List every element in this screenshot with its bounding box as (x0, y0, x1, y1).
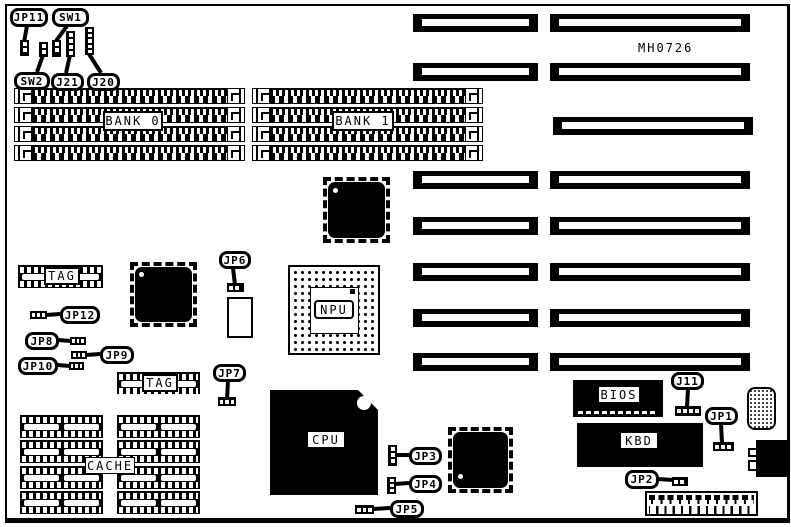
bank1-label: BANK 1 (332, 111, 394, 131)
expansion-slot (413, 14, 538, 32)
expansion-slot (550, 309, 750, 327)
power-connector-pins (649, 495, 754, 504)
jumper-jp4-block (387, 477, 396, 494)
keyboard-din-connector (756, 440, 788, 477)
simm-socket-bank0 (14, 145, 245, 161)
tag-lower-label: TAG (142, 374, 178, 392)
callout-j11: J11 (671, 372, 704, 390)
simm-socket-bank0 (14, 88, 245, 104)
expansion-slot (413, 217, 538, 235)
callout-jp3: JP3 (409, 447, 442, 465)
kbd-label: KBD (619, 431, 659, 450)
jumper-jp1-block (713, 442, 734, 451)
cache-chip (20, 415, 103, 438)
tag-upper-label: TAG (44, 267, 80, 285)
expansion-slot (550, 353, 750, 371)
cache-chip (117, 415, 200, 438)
jumper-jp6-block (227, 283, 244, 292)
cache-chip (117, 491, 200, 514)
callout-jp6: JP6 (219, 251, 251, 269)
expansion-slot (550, 63, 750, 81)
expansion-slot (413, 171, 538, 189)
callout-jp1: JP1 (705, 407, 738, 425)
motherboard-diagram: MH0726 BANK 0 BANK 1 TAG TAG NPU C (0, 0, 791, 527)
switch-sw1-block (52, 40, 61, 57)
callout-jp11: JP11 (10, 8, 48, 27)
expansion-slot (413, 263, 538, 281)
switch-sw2-block (39, 42, 48, 57)
callout-sw2: SW2 (14, 72, 50, 90)
npu-label: NPU (314, 300, 354, 319)
jumper-jp2-block (672, 477, 688, 486)
jumper-jp9-block (71, 351, 87, 359)
oscillator-socket (227, 297, 253, 338)
stippled-oval-component (747, 387, 776, 430)
board-model-text: MH0726 (638, 41, 693, 55)
jumper-jp7-block (218, 397, 236, 406)
callout-jp4: JP4 (409, 475, 442, 493)
qfp-chip (323, 177, 390, 243)
callout-jp12: JP12 (60, 306, 100, 324)
expansion-slot (413, 353, 538, 371)
jumper-j20-block (85, 27, 94, 55)
jumper-jp11-block (20, 40, 29, 56)
din-connector-tab (748, 448, 758, 457)
jumper-j11-block (675, 406, 701, 416)
cpu-pin1-marker (357, 396, 371, 410)
callout-j20: J20 (87, 73, 120, 91)
expansion-slot (553, 117, 753, 135)
qfp-chip (130, 262, 197, 327)
jumper-jp8-block (70, 337, 86, 345)
callout-jp7: JP7 (213, 364, 246, 382)
power-connector-holes (649, 506, 754, 514)
callout-jp8: JP8 (25, 332, 59, 350)
cache-chip (20, 491, 103, 514)
expansion-slot (550, 217, 750, 235)
expansion-slot (550, 171, 750, 189)
simm-socket-bank1 (252, 145, 483, 161)
qfp-chip (448, 427, 513, 493)
jumper-jp12-block (30, 311, 47, 319)
expansion-slot (413, 63, 538, 81)
expansion-slot (413, 309, 538, 327)
callout-jp9: JP9 (100, 346, 134, 364)
expansion-slot (550, 14, 750, 32)
callout-jp10: JP10 (18, 357, 58, 375)
callout-jp5: JP5 (390, 500, 424, 518)
din-connector-tab (748, 460, 758, 471)
jumper-jp10-block (69, 362, 84, 370)
callout-jp2: JP2 (625, 470, 659, 489)
cache-label: CACHE (85, 457, 135, 474)
expansion-slot (550, 263, 750, 281)
cpu-label: CPU (306, 430, 346, 449)
simm-socket-bank1 (252, 88, 483, 104)
bios-label: BIOS (597, 385, 641, 404)
callout-j21: J21 (51, 73, 84, 91)
jumper-j21-block (66, 31, 75, 57)
jumper-jp5-block (355, 505, 374, 514)
callout-sw1: SW1 (52, 8, 89, 27)
bios-socket-pins (578, 411, 658, 414)
power-connector (645, 491, 758, 516)
bank0-label: BANK 0 (103, 111, 163, 131)
jumper-jp3-block (388, 445, 397, 466)
